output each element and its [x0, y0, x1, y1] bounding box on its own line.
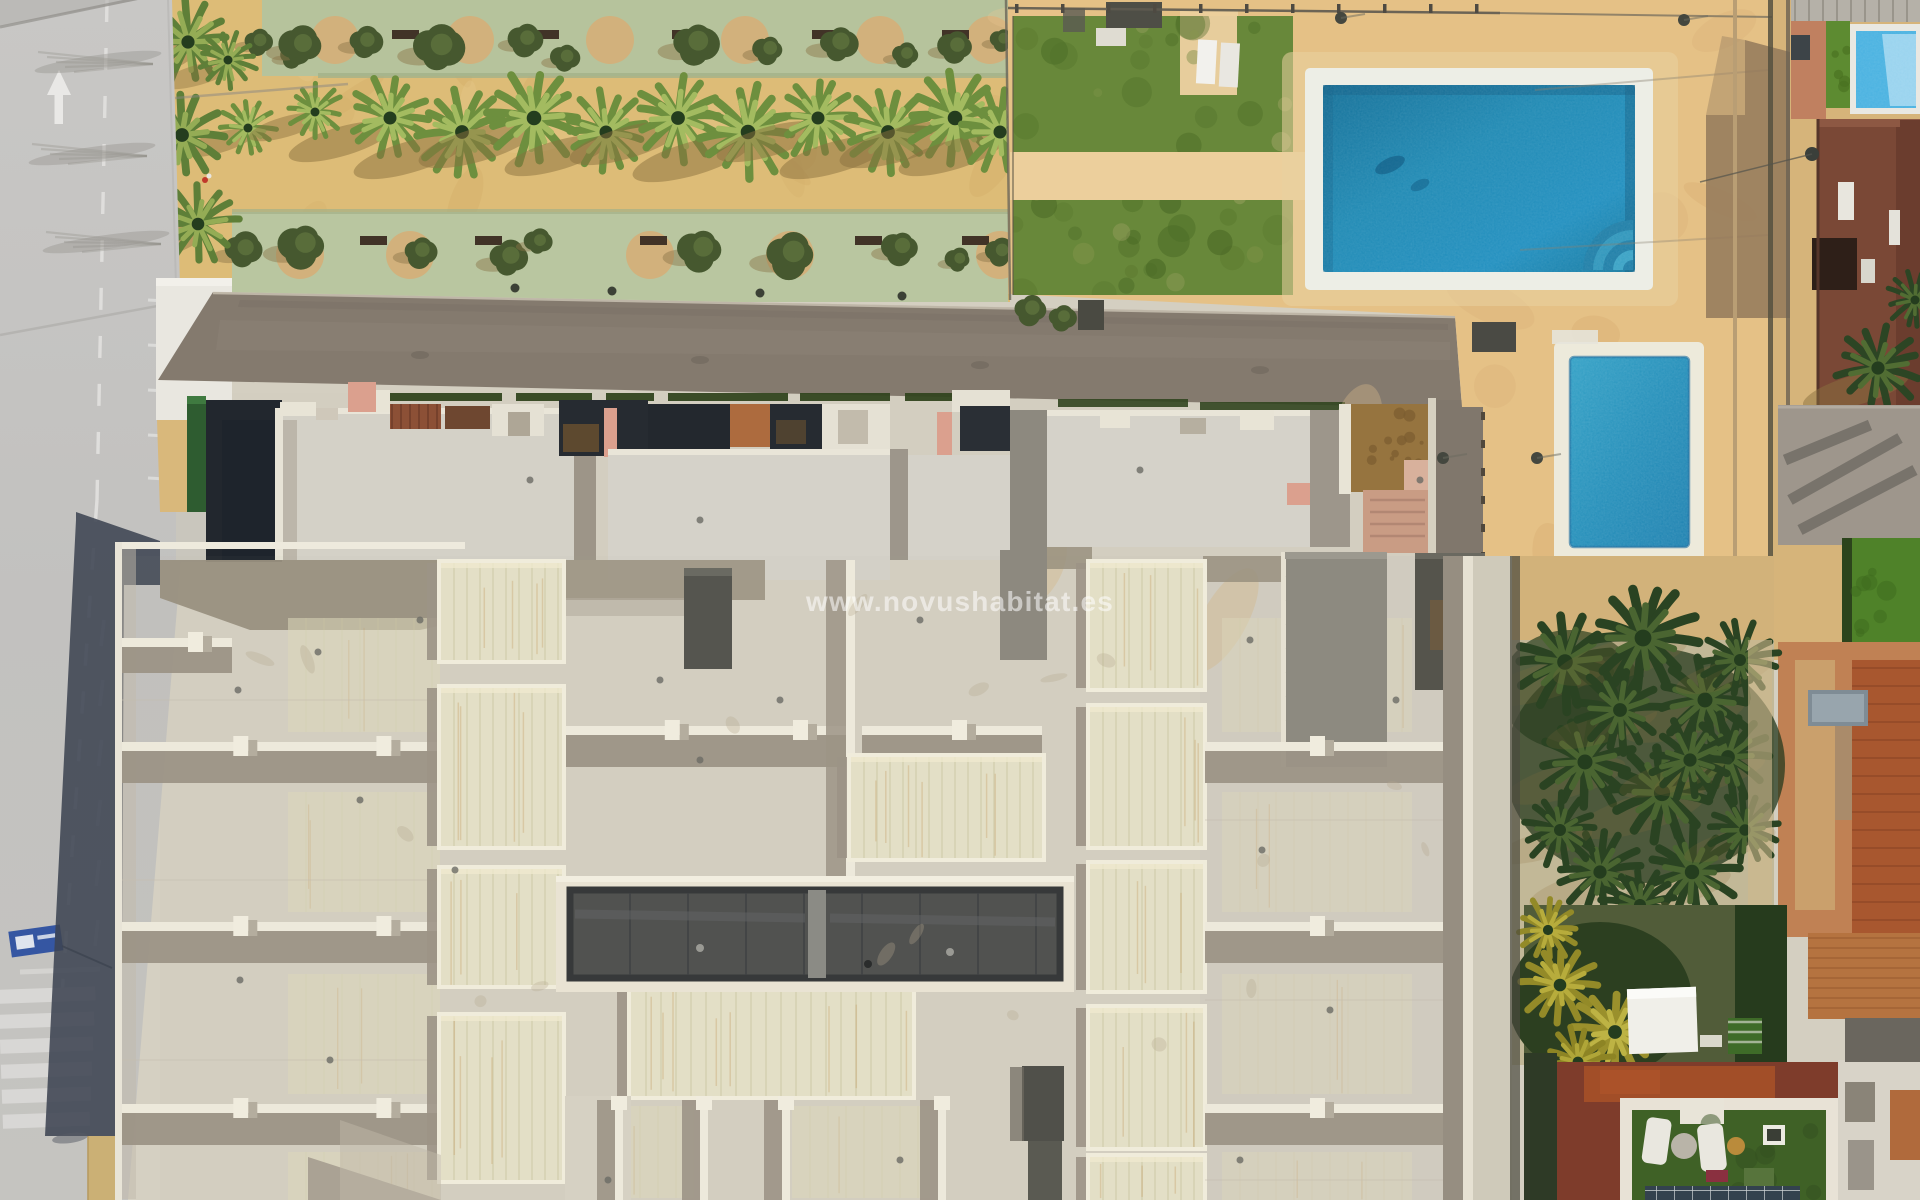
svg-text:www.novushabitat.es: www.novushabitat.es — [805, 586, 1114, 617]
